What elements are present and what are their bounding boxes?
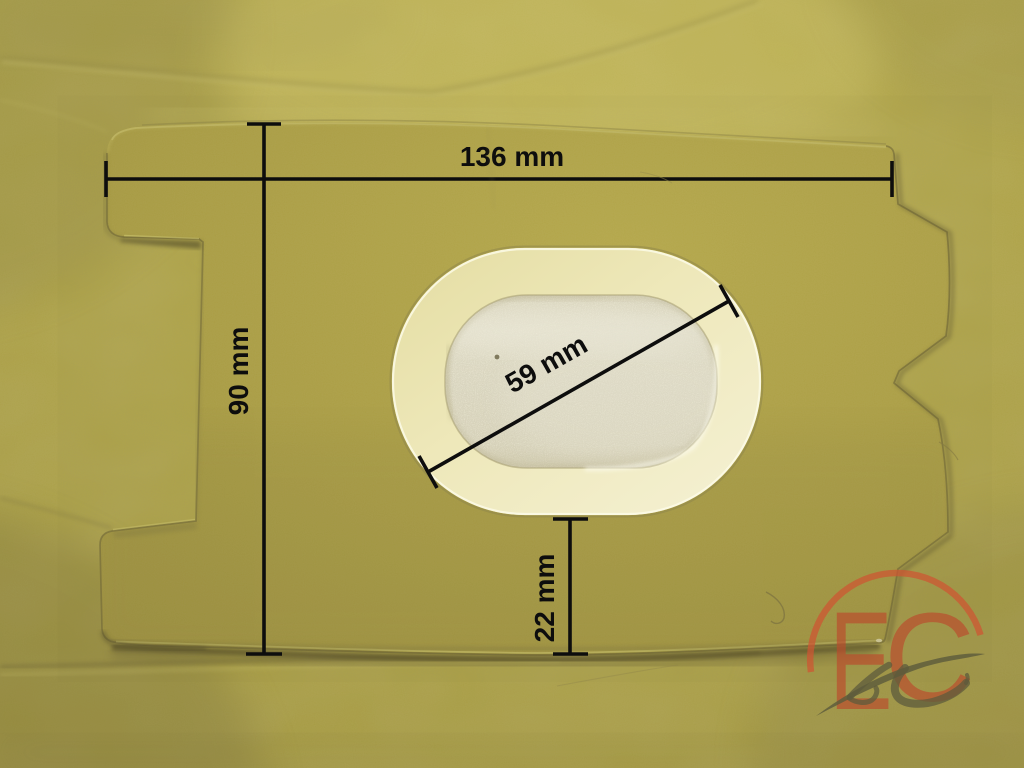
svg-text:136 mm: 136 mm [460,141,564,172]
svg-text:22 mm: 22 mm [529,554,560,643]
svg-text:90 mm: 90 mm [223,327,254,416]
svg-text:E: E [829,584,892,740]
